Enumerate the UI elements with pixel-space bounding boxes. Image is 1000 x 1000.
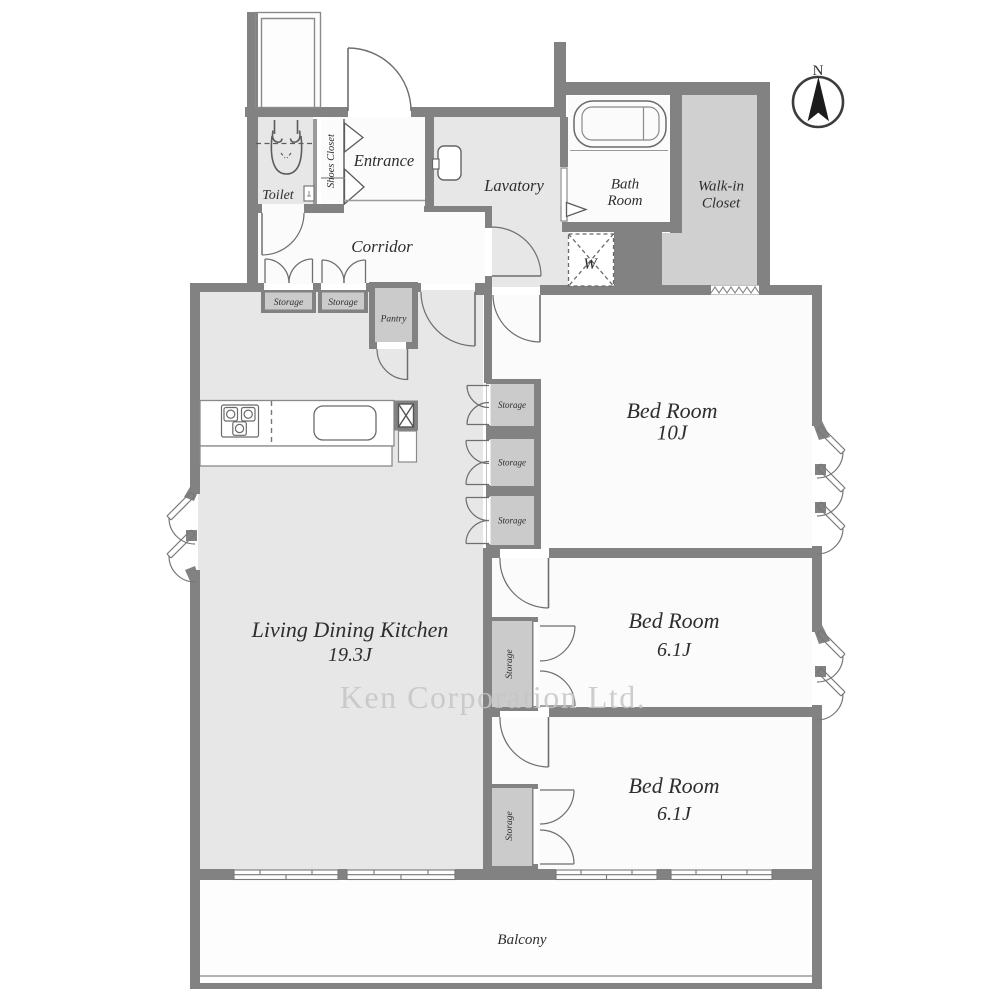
svg-text:6.1J: 6.1J <box>657 639 692 661</box>
svg-text:Shoes Closet: Shoes Closet <box>326 133 337 188</box>
svg-text:Room: Room <box>607 193 643 209</box>
svg-text:10J: 10J <box>657 421 689 445</box>
svg-text:Storage: Storage <box>274 298 304 308</box>
svg-text:Storage: Storage <box>498 400 526 410</box>
svg-text:Bed Room: Bed Room <box>628 773 719 798</box>
svg-text:Bed Room: Bed Room <box>626 398 717 423</box>
svg-text:N: N <box>813 63 824 79</box>
svg-text:Bed Room: Bed Room <box>628 608 719 633</box>
svg-text:Storage: Storage <box>505 649 515 679</box>
svg-text:19.3J: 19.3J <box>328 644 373 666</box>
svg-text:Balcony: Balcony <box>497 932 546 948</box>
svg-text:Toilet: Toilet <box>262 188 294 203</box>
svg-text:Closet: Closet <box>702 196 741 212</box>
svg-text:Storage: Storage <box>505 811 515 841</box>
svg-text:Corridor: Corridor <box>351 237 413 256</box>
svg-text:Walk-in: Walk-in <box>698 179 744 195</box>
svg-text:W: W <box>583 256 598 273</box>
svg-text:Pantry: Pantry <box>380 315 408 325</box>
svg-text:Storage: Storage <box>328 298 358 308</box>
svg-text:Bath: Bath <box>611 177 639 193</box>
svg-text:Entrance: Entrance <box>353 151 414 170</box>
svg-text:Storage: Storage <box>498 516 526 526</box>
svg-text:Living Dining Kitchen: Living Dining Kitchen <box>251 617 449 642</box>
svg-text:Lavatory: Lavatory <box>483 176 544 195</box>
svg-text:6.1J: 6.1J <box>657 803 692 825</box>
svg-text:Storage: Storage <box>498 458 526 468</box>
svg-text:Ken Corporation Ltd.: Ken Corporation Ltd. <box>340 679 646 715</box>
